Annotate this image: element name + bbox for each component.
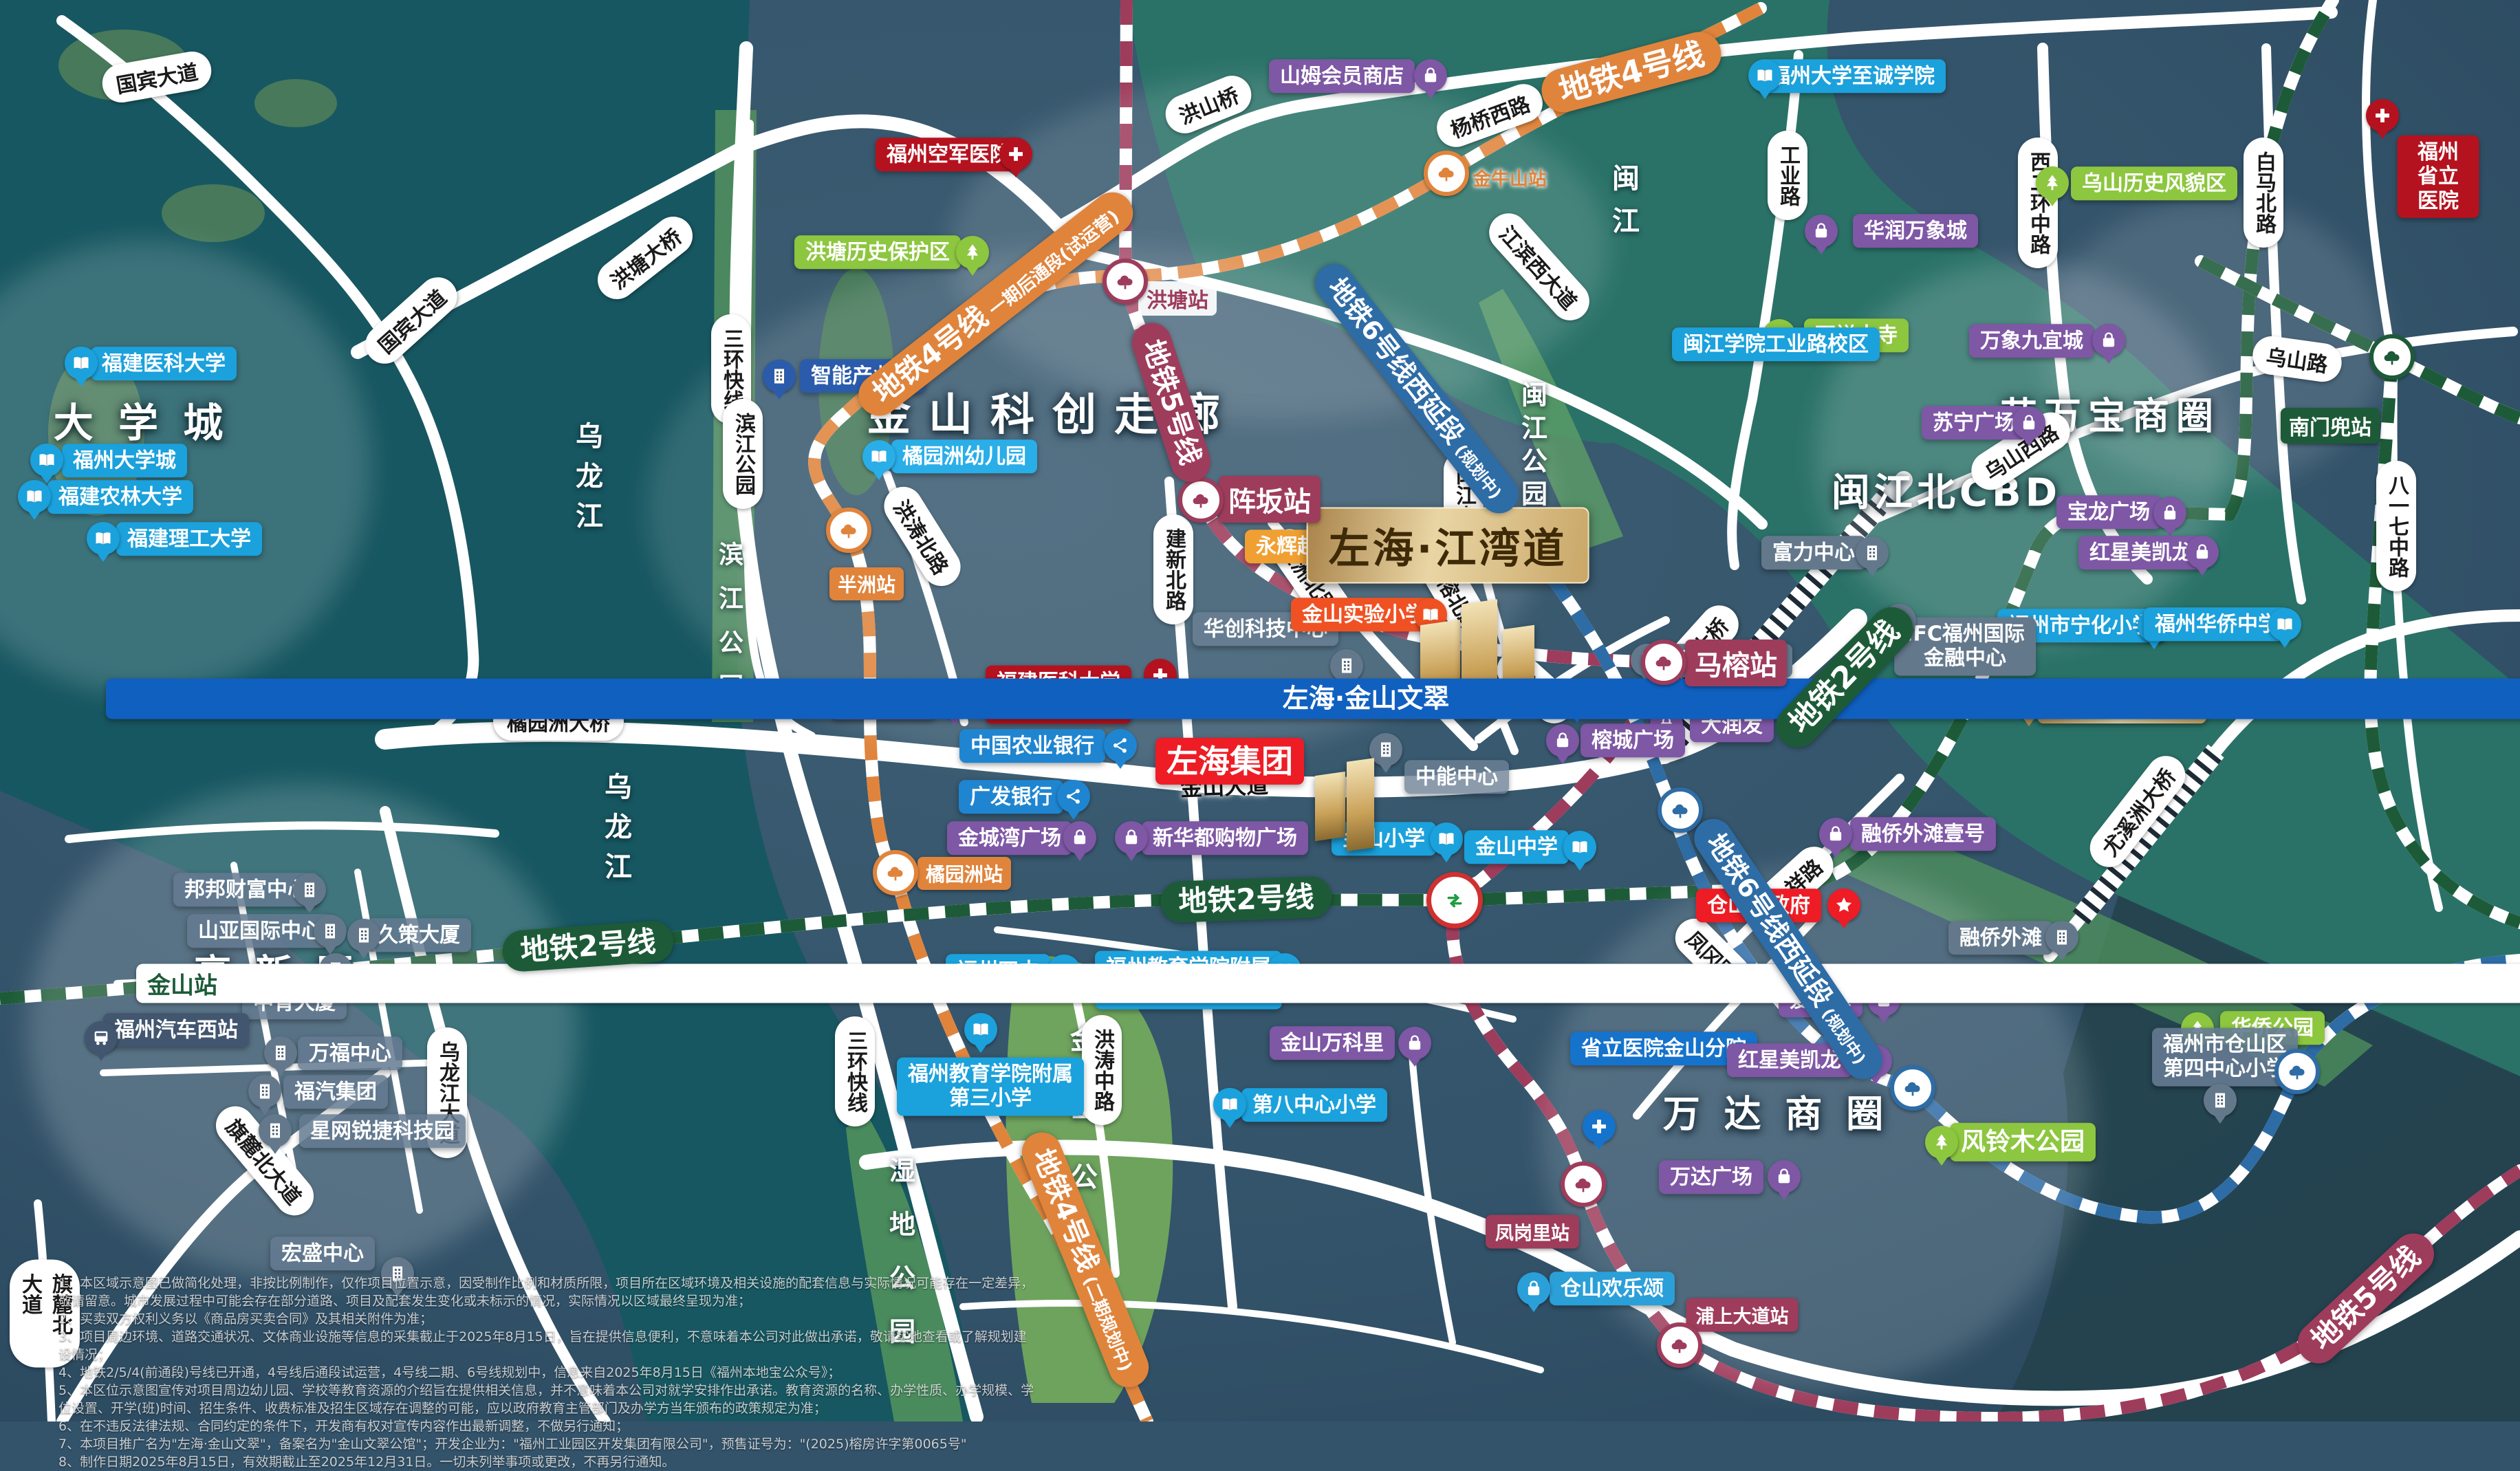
bag-icon — [1063, 821, 1096, 854]
tree-icon — [2036, 166, 2069, 199]
project-badge: 左海·江湾道 — [1307, 508, 1589, 584]
bldg-icon — [2204, 1084, 2237, 1117]
metro-station-icon — [1561, 1162, 1606, 1207]
map-poi-label: 福建农林大学 — [47, 480, 193, 514]
bldg-icon — [2045, 921, 2078, 954]
tree-icon — [1925, 1126, 1958, 1159]
map-poi-label: 宏盛中心 — [270, 1236, 375, 1270]
metro-station-icon — [1424, 151, 1469, 196]
book-icon — [964, 1013, 997, 1046]
metro-station-icon — [2369, 334, 2415, 380]
bldg-icon — [1330, 649, 1363, 682]
book-icon — [30, 444, 63, 477]
water-park-name: 乌龙江 — [567, 422, 607, 541]
sister-project-label: 左海·金山文翠 — [106, 679, 2520, 719]
share-icon — [1104, 729, 1137, 762]
water-park-name: 乌龙江 — [596, 772, 636, 892]
disclaimer-line: 4、地铁2/5/4(前通段)号线已开通，4号线后通段试运营，4号线二期、6号线规… — [58, 1364, 1035, 1382]
road-label: 滨江公园 — [723, 399, 763, 509]
metro-station-label: 洪塘站 — [1138, 281, 1217, 316]
map-poi-label: IFC福州国际 金融中心 — [1894, 618, 2036, 676]
interchange-station-icon — [1426, 872, 1483, 928]
metro-station-icon — [1178, 477, 1224, 523]
water-park-name: 闽江公园 — [1514, 381, 1552, 513]
map-poi-label: 华润万象城 — [1853, 214, 1978, 248]
map-poi-label: 福州省立医院 — [2398, 135, 2479, 218]
map-poi-label: 福州大学至诚学院 — [1759, 59, 1946, 93]
map-poi-label: 山亚国际中心 — [187, 914, 333, 948]
map-poi-label: 仓山欢乐颂 — [1550, 1272, 1675, 1305]
metro-station-label: 金牛山站 — [1473, 164, 1547, 191]
map-poi-label: 山姆会员商店 — [1269, 59, 1415, 93]
map-poi-label: 万达广场 — [1659, 1160, 1763, 1194]
map-poi-label: 红星美凯龙 — [2078, 536, 2204, 569]
map-poi-label: 广发银行 — [959, 780, 1063, 814]
metro-station-label: 浦上大道站 — [1686, 1298, 1799, 1332]
map-poi-label: 闽江学院工业路校区 — [1672, 327, 1880, 361]
book-icon — [1213, 1088, 1246, 1121]
book-icon — [1748, 59, 1781, 92]
metro-station-icon — [2274, 1049, 2320, 1094]
map-poi-label: 新华都购物广场 — [1142, 821, 1308, 855]
metro-station-label: 南门兜站 — [2281, 408, 2380, 444]
disclaimer-line: 5、本区位示意图宣传对项目周边幼儿园、学校等教育资源的介绍旨在提供相关信息，并不… — [58, 1382, 1035, 1417]
cross-icon — [1583, 1110, 1616, 1143]
bag-icon — [1398, 1027, 1431, 1060]
map-poi-label: 宝龙广场 — [2056, 495, 2161, 529]
map-poi-label: 福建医科大学 — [91, 347, 237, 380]
map-poi-label: 富力中心 — [1761, 536, 1866, 569]
district-label: 闽江北CBD — [1832, 462, 2061, 518]
star-icon — [1827, 889, 1860, 922]
metro-station-icon — [1102, 259, 1148, 304]
book-icon — [1430, 822, 1463, 856]
book-icon — [65, 347, 98, 380]
metro-station-label: 金山站 — [136, 963, 2520, 1003]
map-poi-label: 融侨外滩壹号 — [1850, 817, 1996, 851]
sister-project-towers-icon — [1347, 758, 1374, 851]
road-label: 洪涛中路 — [1082, 1015, 1122, 1125]
bag-icon — [2153, 497, 2186, 530]
book-icon — [862, 440, 895, 473]
bag-icon — [1819, 818, 1852, 851]
disclaimer-line: 2、买卖双方权利义务以《商品房买卖合同》及其相关附件为准； — [58, 1310, 1035, 1328]
map-poi-label: 融侨外滩 — [1948, 921, 2053, 955]
bag-icon — [1768, 1160, 1801, 1193]
metro-station-icon — [1890, 1065, 1935, 1111]
bldg-icon — [763, 360, 796, 393]
disclaimer-line: 6、在不违反法律法规、合同约定的条件下，开发商有权对宣传内容作出最新调整，不做另… — [58, 1417, 1035, 1435]
book-icon — [1563, 831, 1596, 864]
metro-station-label: 马榕站 — [1685, 640, 1787, 686]
map-poi-label: 福州教育学院附属 第三小学 — [897, 1058, 1084, 1116]
map-poi-label: 金山中学 — [1464, 830, 1569, 864]
map-poi-label: 苏宁广场 — [1922, 406, 2026, 439]
bag-icon — [1414, 59, 1447, 92]
bag-icon — [2092, 324, 2125, 357]
map-poi-label: 中国农业银行 — [959, 729, 1105, 763]
bus-icon — [85, 1021, 118, 1054]
bldg-icon — [1856, 536, 1889, 569]
bag-icon — [2186, 536, 2219, 569]
road-label: 建新北路 — [1153, 514, 1193, 624]
bldg-icon — [248, 1075, 281, 1108]
map-poi-label: 洪塘历史保护区 — [794, 235, 961, 269]
book-icon — [2268, 608, 2301, 641]
bldg-icon — [293, 873, 326, 906]
road-label: 工业路 — [1768, 131, 1807, 220]
metro-station-icon — [826, 508, 871, 553]
disclaimer-line: 3、项目周边环境、道路交通状况、文体商业设施等信息的采集截止于2025年8月15… — [58, 1328, 1035, 1364]
bldg-icon — [264, 1036, 297, 1069]
metro-station-icon — [1641, 640, 1686, 685]
map-poi-label: 久策大厦 — [367, 918, 471, 952]
cross-icon — [999, 138, 1032, 171]
disclaimer-line: 敬请留意。城市发展过程中可能会存在部分道路、项目及配套发生变化或未标示的情况，实… — [58, 1292, 1035, 1310]
map-poi-label: 万象九宜城 — [1969, 324, 2094, 358]
metro-station-label: 半洲站 — [829, 567, 904, 600]
disclaimer-text: 1、本区域示意图已做简化处理，非按比例制作，仅作项目位置示意，因受制作比例和材质… — [58, 1274, 1035, 1471]
metro-station-label: 凤岗里站 — [1486, 1215, 1579, 1249]
disclaimer-line: 1、本区域示意图已做简化处理，非按比例制作，仅作项目位置示意，因受制作比例和材质… — [58, 1274, 1035, 1292]
district-label: 万 达 商 圈 — [1663, 1084, 1889, 1138]
map-poi-label: 星网锐捷科技园 — [299, 1114, 466, 1148]
sister-project-towers-icon — [1315, 772, 1345, 841]
bag-icon — [1115, 821, 1148, 854]
metro-station-icon — [1658, 787, 1703, 833]
metro-station-label: 橘园洲站 — [917, 857, 1011, 890]
disclaimer-line: 7、本项目推广名为"左海·金山文翠"，备案名为"金山文翠公馆"；开发企业为："福… — [58, 1435, 1035, 1453]
bldg-icon — [314, 915, 347, 948]
bag-icon — [1517, 1272, 1550, 1305]
map-poi-label: 中能中心 — [1404, 760, 1509, 794]
map-poi-label: 福汽集团 — [283, 1075, 388, 1109]
metro-station-label: 阵坂站 — [1219, 476, 1321, 523]
map-poi-label: 万福中心 — [298, 1036, 402, 1070]
bag-icon — [2012, 406, 2045, 439]
map-poi-label: 第八中心小学 — [1241, 1088, 1387, 1122]
disclaimer-line: 8、制作日期2025年8月15日，有效期截止至2025年12月31日。一切未列举… — [58, 1453, 1035, 1471]
district-label: 大 学 城 — [54, 391, 228, 448]
metro-station-icon — [1657, 1322, 1702, 1368]
metro-line-badge: 地铁2号线 — [1160, 876, 1332, 924]
tree-icon — [956, 236, 989, 269]
cross-icon — [2366, 99, 2399, 132]
water-park-name: 闽江 — [1603, 164, 1643, 249]
map-poi-label: 金城湾广场 — [947, 821, 1072, 855]
map-poi-label: 福州汽车西站 — [103, 1013, 249, 1047]
road-label: 三环快线 — [835, 1016, 875, 1126]
bldg-icon — [1369, 733, 1402, 766]
map-poi-label: 金山万科里 — [1270, 1026, 1395, 1060]
bldg-icon — [259, 1114, 292, 1147]
map-poi-label: 福州大学城 — [62, 444, 187, 477]
map-poi-label: 福建理工大学 — [116, 522, 262, 556]
book-icon — [18, 480, 51, 513]
book-icon — [87, 522, 120, 555]
map-poi-label: 风铃木公园 — [1950, 1123, 2096, 1162]
road-label: 八一七中路 — [2376, 461, 2416, 591]
map-poi-label: 橘园洲幼儿园 — [891, 439, 1037, 473]
metro-station-icon — [873, 850, 918, 895]
bag-icon — [1805, 215, 1838, 248]
share-icon — [1057, 780, 1090, 813]
map-poi-label: 榕城广场 — [1581, 723, 1685, 757]
company-label: 左海集团 — [1155, 738, 1304, 785]
promo-map: 金山科创走廊大 学 城高 新 区闽江北CBD苏万宝商圈万 达 商 圈乌龙江乌龙江… — [0, 0, 2520, 1421]
bldg-icon — [347, 919, 380, 952]
map-poi-label: 乌山历史风貌区 — [2071, 166, 2237, 200]
road-label: 白马北路 — [2244, 138, 2283, 248]
